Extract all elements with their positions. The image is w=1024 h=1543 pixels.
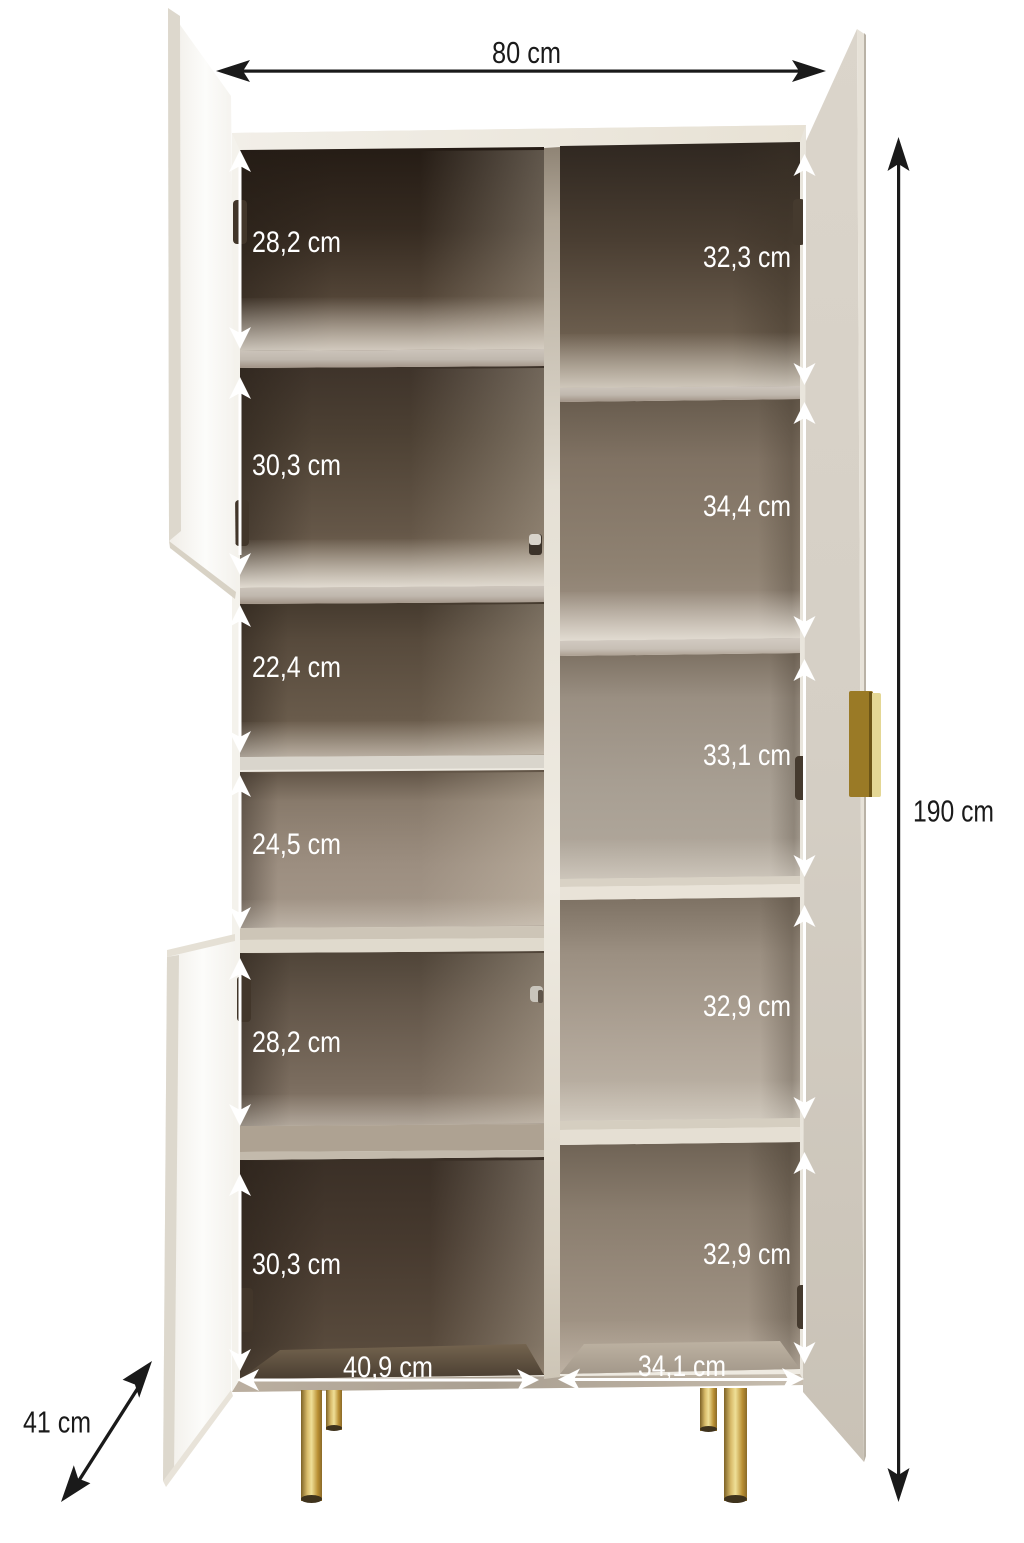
svg-text:28,2 cm: 28,2 cm <box>252 226 341 259</box>
svg-text:30,3 cm: 30,3 cm <box>252 1248 341 1281</box>
svg-text:28,2 cm: 28,2 cm <box>252 1026 341 1059</box>
svg-text:33,1 cm: 33,1 cm <box>703 739 791 772</box>
svg-text:80 cm: 80 cm <box>492 35 561 70</box>
svg-text:41 cm: 41 cm <box>23 1405 91 1440</box>
svg-text:24,5 cm: 24,5 cm <box>252 828 341 861</box>
svg-text:32,3 cm: 32,3 cm <box>703 241 791 274</box>
svg-text:190 cm: 190 cm <box>913 794 994 829</box>
svg-text:40,9 cm: 40,9 cm <box>343 1351 433 1384</box>
svg-text:34,4 cm: 34,4 cm <box>703 490 791 523</box>
svg-text:32,9 cm: 32,9 cm <box>703 1238 791 1271</box>
svg-text:30,3 cm: 30,3 cm <box>252 449 341 482</box>
svg-text:34,1 cm: 34,1 cm <box>638 1350 726 1383</box>
svg-text:32,9 cm: 32,9 cm <box>703 990 791 1023</box>
svg-text:22,4 cm: 22,4 cm <box>252 651 341 684</box>
